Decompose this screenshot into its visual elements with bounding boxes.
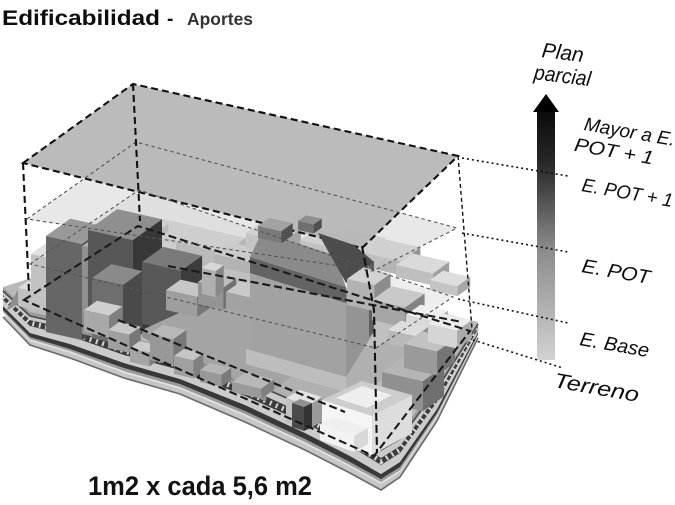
svg-text:Aportes: Aportes [187,9,253,29]
svg-text:1m2 x cada 5,6 m2: 1m2 x cada 5,6 m2 [88,471,312,501]
svg-text:-: - [167,9,173,30]
svg-text:Edificabilidad: Edificabilidad [2,6,160,30]
